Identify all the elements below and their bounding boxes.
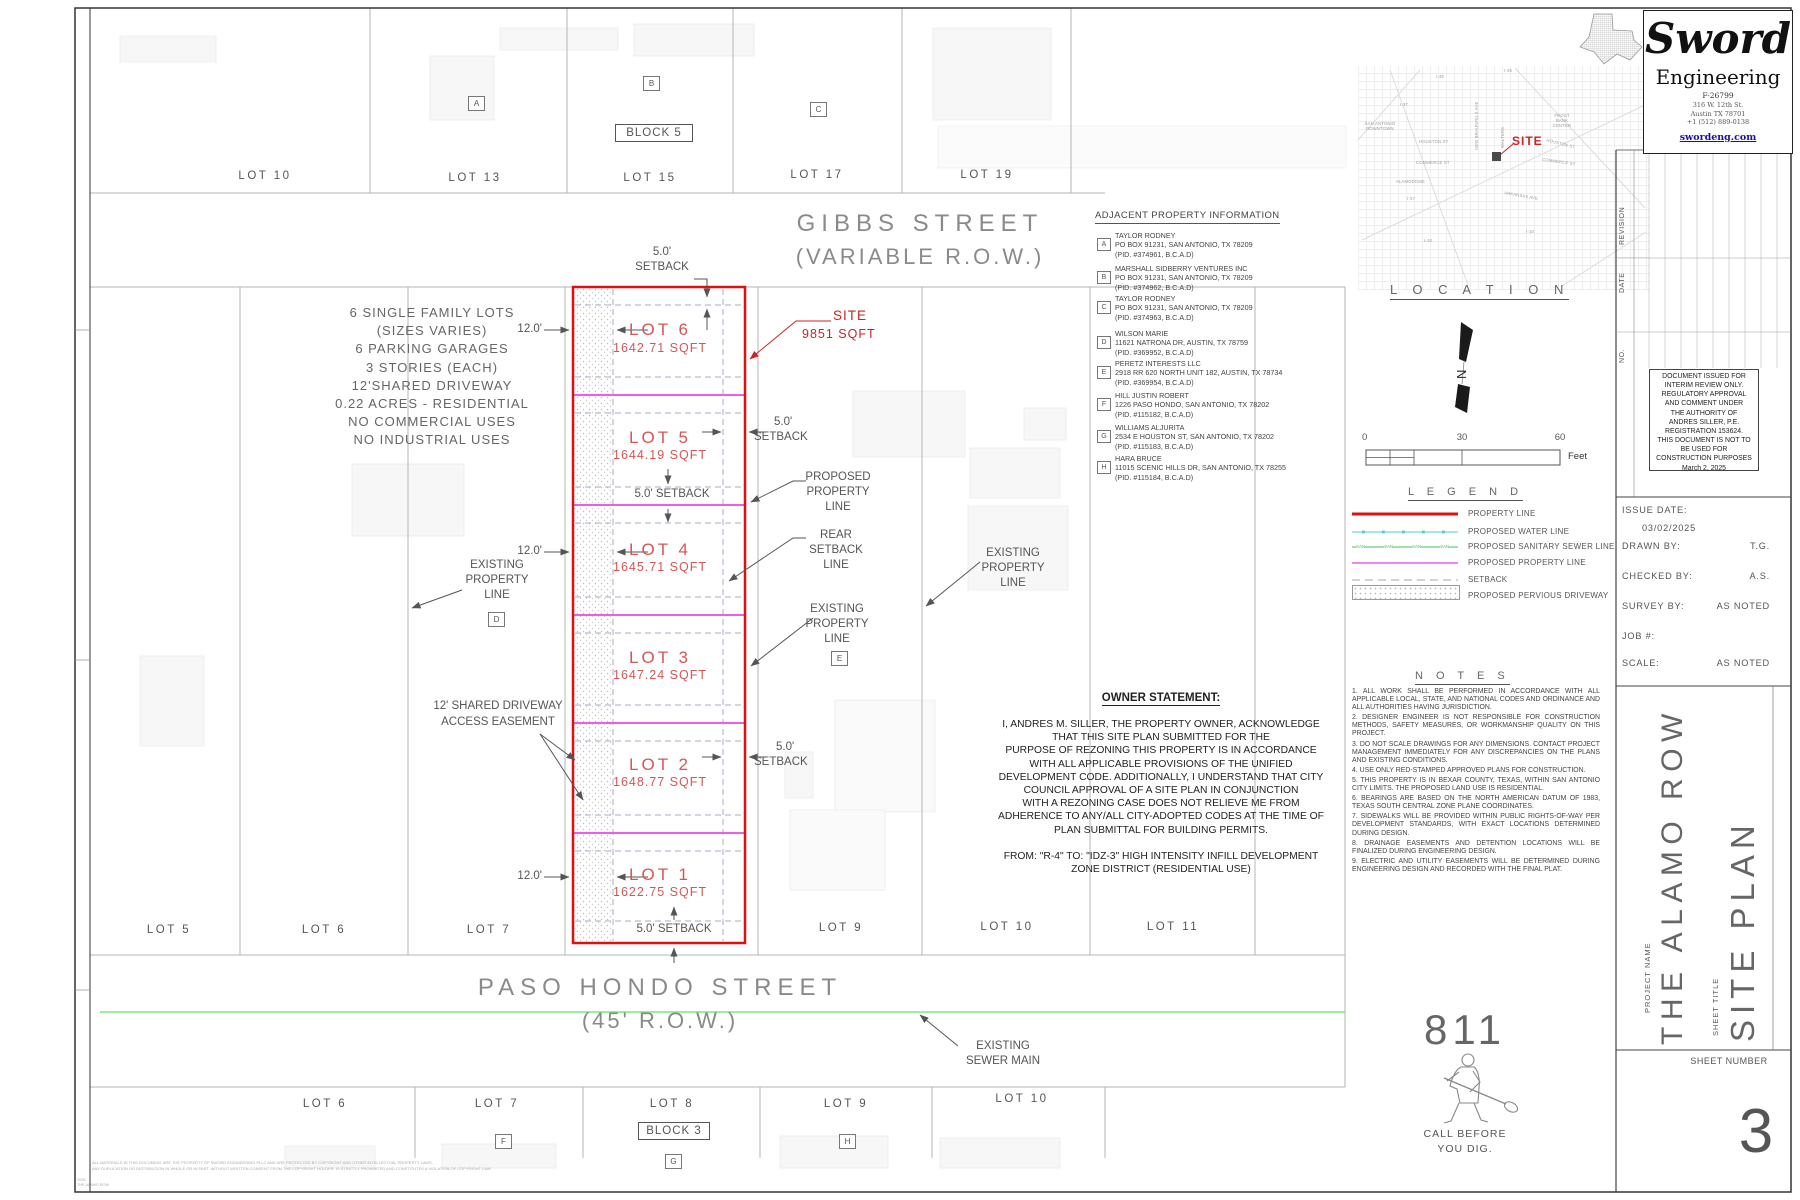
scale-60: 60 [1550, 432, 1570, 443]
site-callout-title: SITE [833, 308, 867, 323]
scale-unit: Feet [1568, 451, 1587, 462]
map-label-houston-1: HOUSTON ST [1419, 139, 1448, 144]
mid-lot-9: LOT 9 [796, 922, 886, 934]
proposed-pl-callout: PROPOSEDPROPERTYLINE [793, 470, 883, 515]
lot3-area: 1647.24 SQFT [600, 668, 720, 682]
adjacent-marker-d: D [1097, 336, 1111, 349]
legend-item-proposed-pl: PROPOSED PROPERTY LINE [1468, 558, 1586, 567]
adjacent-marker-b: B [1097, 271, 1111, 284]
lot1-name: LOT 1 [600, 865, 720, 885]
map-label-frost: FROST BANK CENTER [1548, 114, 1576, 128]
digger-icon [1444, 1054, 1519, 1123]
gibbs-street-name: GIBBS STREET [770, 210, 1070, 238]
interim-review-box: DOCUMENT ISSUED FORINTERIM REVIEW ONLY.R… [1649, 369, 1759, 471]
mid-lot-6: LOT 6 [279, 924, 369, 936]
owner-statement-body: I, ANDRES M. SILLER, THE PROPERTY OWNER,… [975, 718, 1347, 837]
adjacent-entry-c: TAYLOR RODNEYPO BOX 91231, SAN ANTONIO, … [1115, 294, 1253, 322]
lot6-name: LOT 6 [600, 320, 720, 340]
driveway-easement-callout-1: 12' SHARED DRIVEWAY [418, 700, 578, 712]
dim-12-lot6: 12.0' [496, 323, 542, 335]
legend-san-2: SAN [1384, 544, 1393, 549]
fine-print-1: ALL MATERIALS IN THIS DOCUMENT ARE THE P… [92, 1160, 433, 1165]
bottom-lot-6: LOT 6 [280, 1098, 370, 1110]
call-811-line1: CALL BEFORE [1417, 1128, 1513, 1140]
survey-by-label: SURVEY BY: [1622, 601, 1684, 611]
top-lot-17: LOT 17 [772, 169, 862, 181]
notes-list: 1. ALL WORK SHALL BE PERFORMED IN ACCORD… [1352, 688, 1600, 876]
checked-by-label: CHECKED BY: [1622, 571, 1693, 581]
lot5-area: 1644.19 SQFT [600, 448, 720, 462]
map-site-label: SITE [1512, 134, 1543, 148]
adjacent-entry-a: TAYLOR RODNEYPO BOX 91231, SAN ANTONIO, … [1115, 231, 1253, 259]
firm-name-2: Engineering [1644, 65, 1792, 89]
texas-stamp [1580, 14, 1642, 64]
block-3-label: BLOCK 3 [638, 1122, 710, 1140]
notes-title: N O T E S [1415, 670, 1510, 685]
marker-d: D [488, 612, 505, 627]
dim-12-lot4: 12.0' [496, 545, 542, 557]
call-811-line2: YOU DIG. [1417, 1143, 1513, 1155]
drawn-by-label: DRAWN BY: [1622, 541, 1680, 551]
marker-c: C [810, 102, 827, 117]
setback-r1-5: 5.0' [774, 416, 792, 428]
adjacent-entry-g: WILLIAMS ALJURITA2534 E HOUSTON ST, SAN … [1115, 423, 1274, 451]
top-lot-13: LOT 13 [430, 172, 520, 184]
checked-by-value: A.S. [1700, 571, 1770, 581]
map-label-walters: WALTERS [1500, 127, 1505, 148]
call-811-number: 811 [1424, 1006, 1504, 1054]
fine-print-corner-2: THE ALAMO ROW [77, 1183, 109, 1187]
date-label: DATE [1619, 272, 1626, 293]
lot5-name: LOT 5 [600, 428, 720, 448]
existing-pl-callout-e: EXISTINGPROPERTYLINE [793, 602, 881, 647]
gibbs-street-row: (VARIABLE R.O.W.) [770, 244, 1070, 270]
job-number-label: JOB #: [1622, 631, 1655, 641]
site-callout-area: 9851 SQFT [802, 327, 876, 341]
firm-addr2: Austin TX 78701 [1644, 110, 1792, 119]
legend-title: L E G E N D [1408, 486, 1523, 501]
scale-value: AS NOTED [1690, 658, 1770, 668]
north-letter: N [1454, 370, 1469, 379]
map-label-i35-1: I-35 [1436, 74, 1444, 79]
north-arrow [1455, 322, 1473, 413]
top-lot-15: LOT 15 [605, 172, 695, 184]
existing-pl-callout-left: EXISTINGPROPERTYLINE [452, 558, 542, 603]
scale-0: 0 [1362, 432, 1367, 443]
adjacent-entry-h: HARA BRUCE11015 SCENIC HILLS DR, SAN ANT… [1115, 454, 1286, 482]
legend-san-1: SAN [1356, 544, 1365, 549]
project-name: THE ALAMO ROW [1656, 707, 1690, 1045]
setback-mid: 5.0' SETBACK [620, 488, 724, 500]
legend-san-4: SAN [1440, 544, 1449, 549]
site-plan-sheet: LOT 10 LOT 13 LOT 15 LOT 17 LOT 19 A B C… [0, 0, 1800, 1200]
setback-r2-5: 5.0' [776, 741, 794, 753]
setback-lines [575, 289, 743, 941]
lot4-area: 1645.71 SQFT [600, 560, 720, 574]
marker-a: A [468, 96, 485, 111]
scale-label: SCALE: [1622, 658, 1659, 668]
marker-e: E [831, 651, 848, 666]
firm-phone: +1 (512) 889-0138 [1644, 118, 1792, 127]
survey-by-value: AS NOTED [1690, 601, 1770, 611]
map-label-i37-2: I-37 [1407, 196, 1415, 201]
lot4-name: LOT 4 [600, 540, 720, 560]
setback-top-5: 5.0' [640, 246, 684, 258]
mid-lot-11: LOT 11 [1128, 921, 1218, 933]
owner-statement: OWNER STATEMENT: I, ANDRES M. SILLER, TH… [975, 692, 1347, 876]
setback-top-word: SETBACK [618, 261, 706, 273]
adjacent-marker-f: F [1097, 398, 1111, 411]
legend-item-property: PROPERTY LINE [1468, 509, 1536, 518]
existing-pl-callout-right: EXISTINGPROPERTYLINE [968, 546, 1058, 591]
adjacent-entry-b: MARSHALL SIDBERRY VENTURES INCPO BOX 912… [1115, 264, 1253, 292]
titleblock-lines [1616, 150, 1791, 1192]
firm-logo-box: S​word Engineering F-26799 316 W. 12th S… [1643, 10, 1793, 154]
firm-website-link[interactable]: swordeng.com [1644, 132, 1792, 143]
location-map [1358, 66, 1650, 290]
owner-statement-rezoning: FROM: "R-4" TO: "IDZ-3" HIGH INTENSITY I… [975, 850, 1347, 876]
drawn-by-value: T.G. [1700, 541, 1770, 551]
adjacent-marker-e: E [1097, 366, 1111, 379]
legend-san-3: SAN [1412, 544, 1421, 549]
fine-print-corner-1: 2025 [77, 1178, 85, 1182]
setback-bottom: 5.0' SETBACK [622, 923, 726, 935]
issue-date-label: ISSUE DATE: [1622, 505, 1687, 515]
mid-lot-5: LOT 5 [124, 924, 214, 936]
map-label-i10-2: I-10 [1526, 229, 1534, 234]
issue-date-value: 03/02/2025 [1642, 523, 1696, 533]
lot3-name: LOT 3 [600, 648, 720, 668]
map-label-commerce-1: COMMERCE ST [1416, 160, 1450, 165]
setback-r2-word: SETBACK [754, 756, 808, 768]
lot6-area: 1642.71 SQFT [600, 341, 720, 355]
legend-item-water: PROPOSED WATER LINE [1468, 527, 1569, 536]
sheet-number-label: SHEET NUMBER [1688, 1056, 1770, 1066]
map-label-downtown: SAN ANTONIO DOWNTOWN [1362, 122, 1398, 132]
firm-name: S​word [1644, 13, 1792, 65]
adjacent-title: ADJACENT PROPERTY INFORMATION [1095, 210, 1280, 224]
map-label-i10-1: I-10 [1424, 238, 1432, 243]
lot2-area: 1648.77 SQFT [600, 775, 720, 789]
legend-item-sanitary: PROPOSED SANITARY SEWER LINE [1468, 542, 1615, 551]
sheet-title: SITE PLAN [1724, 819, 1762, 1042]
map-label-i35-2: I-35 [1504, 68, 1512, 73]
revision-label: REVISION [1619, 207, 1626, 245]
bottom-lot-7: LOT 7 [452, 1098, 542, 1110]
project-name-label: PROJECT NAME [1643, 942, 1652, 1013]
setback-r1-word: SETBACK [754, 431, 808, 443]
paso-street-row: (45' R.O.W.) [470, 1008, 850, 1034]
driveway-easement-callout-2: ACCESS EASEMENT [418, 716, 578, 728]
legend-item-driveway: PROPOSED PERVIOUS DRIVEWAY [1468, 591, 1609, 600]
bottom-lot-8: LOT 8 [627, 1098, 717, 1110]
owner-statement-title: OWNER STATEMENT: [1102, 692, 1220, 706]
no-label: NO. [1619, 349, 1626, 363]
legend-driveway-swatch [1352, 585, 1460, 600]
legend-item-setback: SETBACK [1468, 575, 1507, 584]
bottom-lot-9: LOT 9 [801, 1098, 891, 1110]
scale-bar [1366, 450, 1560, 465]
adjacent-marker-g: G [1097, 430, 1111, 443]
sewer-main-callout-2: SEWER MAIN [958, 1055, 1048, 1067]
top-lot-10: LOT 10 [220, 170, 310, 182]
dim-12-lot1: 12.0' [496, 870, 542, 882]
marker-g: G [665, 1154, 682, 1169]
mid-lot-7: LOT 7 [444, 924, 534, 936]
bottom-lot-10: LOT 10 [977, 1093, 1067, 1105]
lot1-area: 1622.75 SQFT [600, 885, 720, 899]
top-lot-19: LOT 19 [942, 169, 1032, 181]
adjacent-marker-a: A [1097, 238, 1111, 251]
adjacent-marker-h: H [1097, 461, 1111, 474]
marker-h: H [839, 1134, 856, 1149]
map-label-newbraunfels: NEW BRAUNFELS AVE [1474, 102, 1479, 150]
block-5-label: BLOCK 5 [615, 124, 693, 142]
map-label-i37-1: I-37 [1400, 102, 1408, 107]
marker-f: F [495, 1134, 512, 1149]
marker-b: B [643, 76, 660, 91]
sheet-title-label: SHEET TITLE [1711, 978, 1720, 1036]
lot2-name: LOT 2 [600, 755, 720, 775]
adjacent-entry-e: PERETZ INTERESTS LLC2918 RR 620 NORTH UN… [1115, 359, 1282, 387]
sheet-number: 3 [1734, 1096, 1778, 1167]
adjacent-marker-c: C [1097, 301, 1111, 314]
paso-street-name: PASO HONDO STREET [470, 974, 850, 1002]
firm-addr1: 316 W. 12th St. [1644, 101, 1792, 110]
scale-30: 30 [1452, 432, 1472, 443]
pervious-driveway-strip [573, 288, 613, 942]
adjacent-entry-d: WILSON MARIE11621 NATRONA DR, AUSTIN, TX… [1115, 329, 1248, 357]
site-property-line [573, 287, 745, 943]
firm-reg: F-26799 [1644, 91, 1792, 101]
fine-print-2: ANY DUPLICATION OR DISTRIBUTION IN WHOLE… [92, 1166, 491, 1171]
adjacent-entry-f: HILL JUSTIN ROBERT1226 PASO HONDO, SAN A… [1115, 391, 1269, 419]
mid-lot-10: LOT 10 [962, 921, 1052, 933]
rear-setback-callout: REARSETBACKLINE [793, 528, 879, 573]
sewer-main-callout-1: EXISTING [958, 1040, 1048, 1052]
map-label-alamodome: ALAMODOME [1396, 179, 1425, 184]
map-title: L O C A T I O N [1390, 282, 1569, 300]
